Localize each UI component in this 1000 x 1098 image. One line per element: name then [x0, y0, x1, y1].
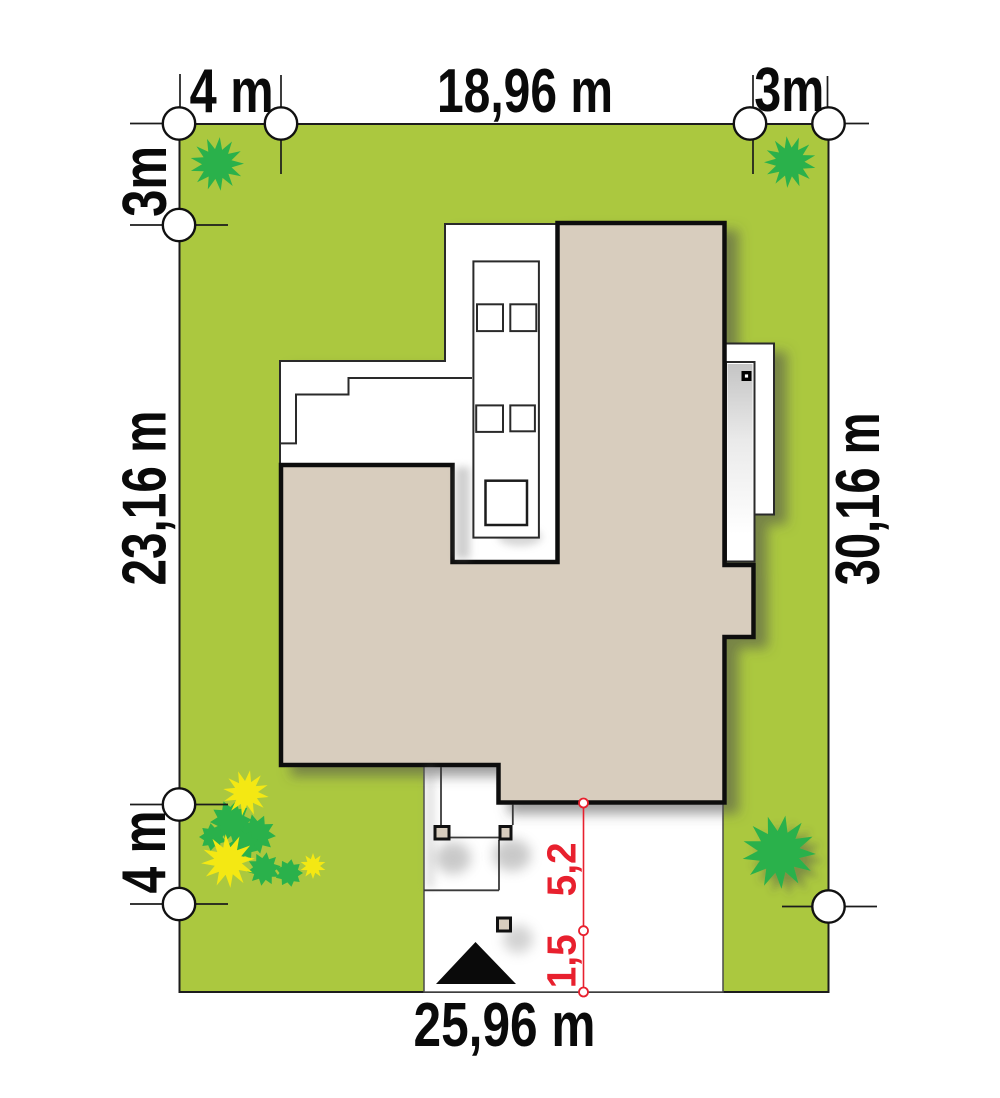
svg-text:3m: 3m: [111, 146, 180, 217]
svg-text:4 m: 4 m: [110, 811, 179, 894]
svg-text:23,16 m: 23,16 m: [111, 411, 180, 586]
svg-text:4 m: 4 m: [190, 57, 274, 126]
svg-text:5,2: 5,2: [539, 842, 585, 896]
svg-text:3m: 3m: [754, 56, 824, 125]
svg-text:1,5: 1,5: [539, 934, 585, 988]
svg-text:30,16 m: 30,16 m: [824, 412, 893, 585]
svg-text:25,96 m: 25,96 m: [414, 991, 596, 1060]
svg-text:18,96 m: 18,96 m: [437, 57, 613, 126]
